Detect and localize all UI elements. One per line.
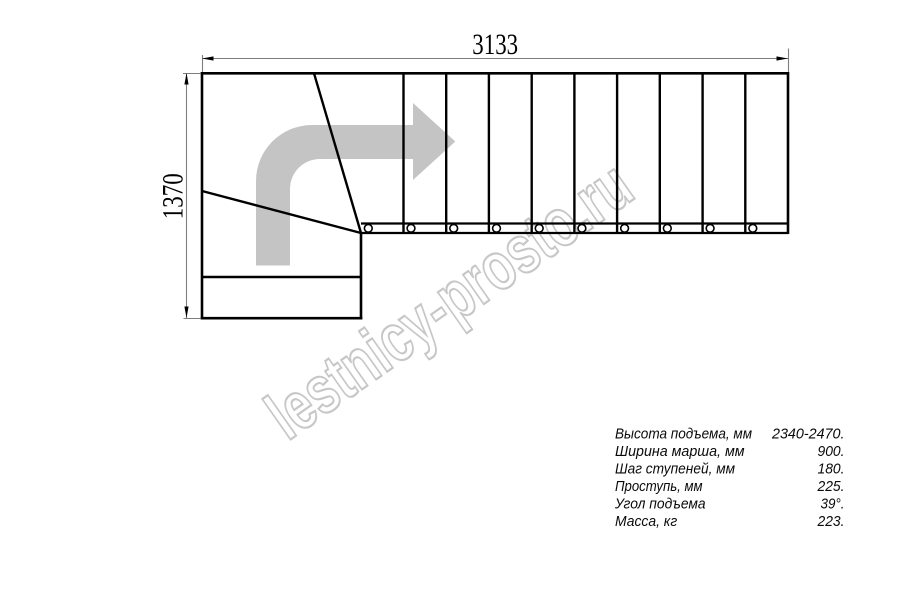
svg-text:900.: 900. bbox=[818, 443, 845, 460]
svg-text:Шаг ступеней, мм: Шаг ступеней, мм bbox=[615, 460, 735, 477]
svg-text:2340-2470.: 2340-2470. bbox=[771, 425, 844, 442]
svg-text:Ширина марша, мм: Ширина марша, мм bbox=[615, 443, 745, 460]
svg-text:223.: 223. bbox=[817, 513, 845, 530]
svg-text:225.: 225. bbox=[817, 478, 845, 495]
svg-text:lestnicy-prosto.ru: lestnicy-prosto.ru bbox=[253, 147, 646, 454]
svg-text:Высота подъема, мм: Высота подъема, мм bbox=[615, 425, 752, 442]
svg-text:Масса, кг: Масса, кг bbox=[615, 513, 678, 530]
svg-text:1370: 1370 bbox=[156, 173, 189, 219]
svg-text:Проступь, мм: Проступь, мм bbox=[615, 478, 703, 495]
svg-text:Угол подъема: Угол подъема bbox=[614, 495, 706, 512]
svg-text:180.: 180. bbox=[818, 460, 845, 477]
svg-text:3133: 3133 bbox=[472, 27, 518, 61]
svg-text:39°.: 39°. bbox=[821, 495, 845, 512]
